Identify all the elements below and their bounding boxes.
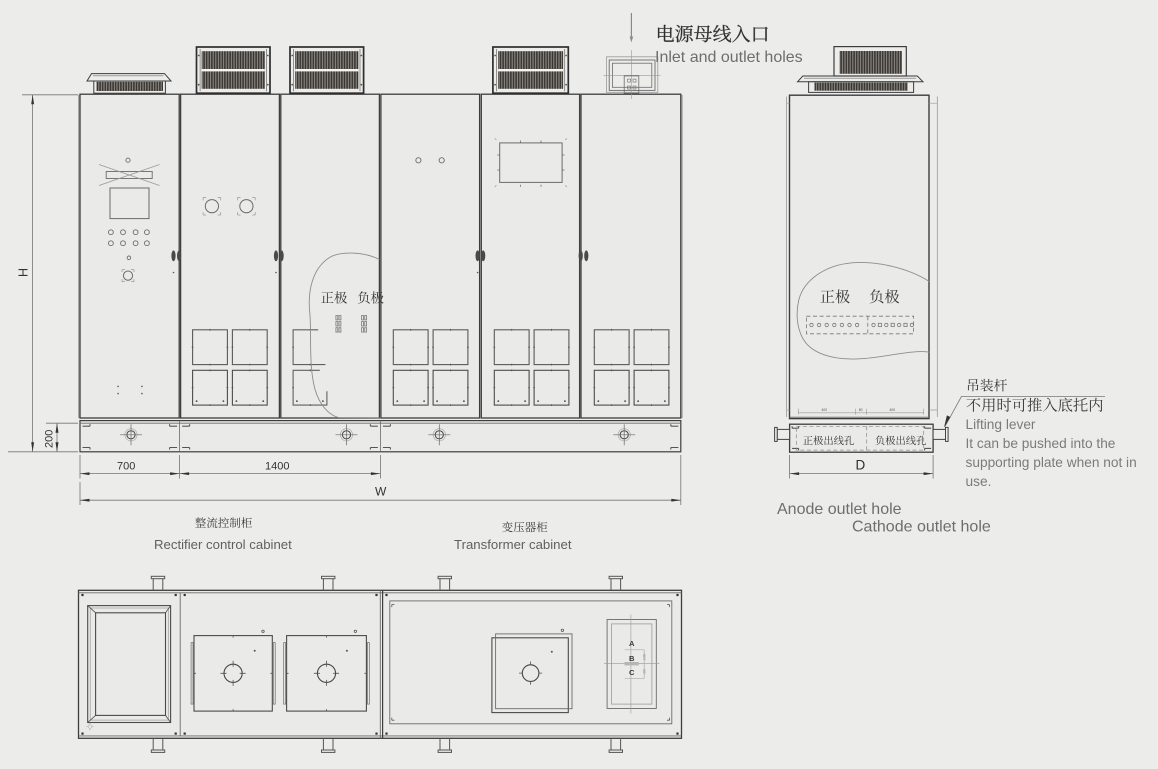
svg-text:80: 80 xyxy=(642,669,646,673)
svg-text:Anode outlet hole: Anode outlet hole xyxy=(777,501,902,518)
svg-text:1400: 1400 xyxy=(265,461,289,473)
svg-text:Lifting lever: Lifting lever xyxy=(966,417,1036,432)
svg-text:W: W xyxy=(375,485,387,499)
svg-text:400: 400 xyxy=(822,408,828,412)
svg-text:supporting plate when not in: supporting plate when not in xyxy=(966,455,1137,470)
svg-text:It can be pushed into the: It can be pushed into the xyxy=(966,436,1116,451)
svg-text:Inlet and outlet holes: Inlet and outlet holes xyxy=(655,49,803,66)
svg-text:B: B xyxy=(629,654,635,663)
svg-text:400: 400 xyxy=(890,408,896,412)
svg-text:use.: use. xyxy=(966,474,992,489)
svg-text:A: A xyxy=(629,639,635,648)
svg-text:100: 100 xyxy=(642,654,646,660)
svg-text:Cathode outlet hole: Cathode outlet hole xyxy=(852,518,991,535)
svg-text:D: D xyxy=(856,457,866,472)
svg-text:C: C xyxy=(629,668,635,677)
svg-text:Transformer cabinet: Transformer cabinet xyxy=(454,537,572,552)
svg-text:200: 200 xyxy=(44,430,56,448)
svg-text:Rectifier control cabinet: Rectifier control cabinet xyxy=(154,537,292,552)
svg-text:H: H xyxy=(17,268,31,277)
svg-text:700: 700 xyxy=(117,461,135,473)
svg-text:80: 80 xyxy=(859,408,863,412)
